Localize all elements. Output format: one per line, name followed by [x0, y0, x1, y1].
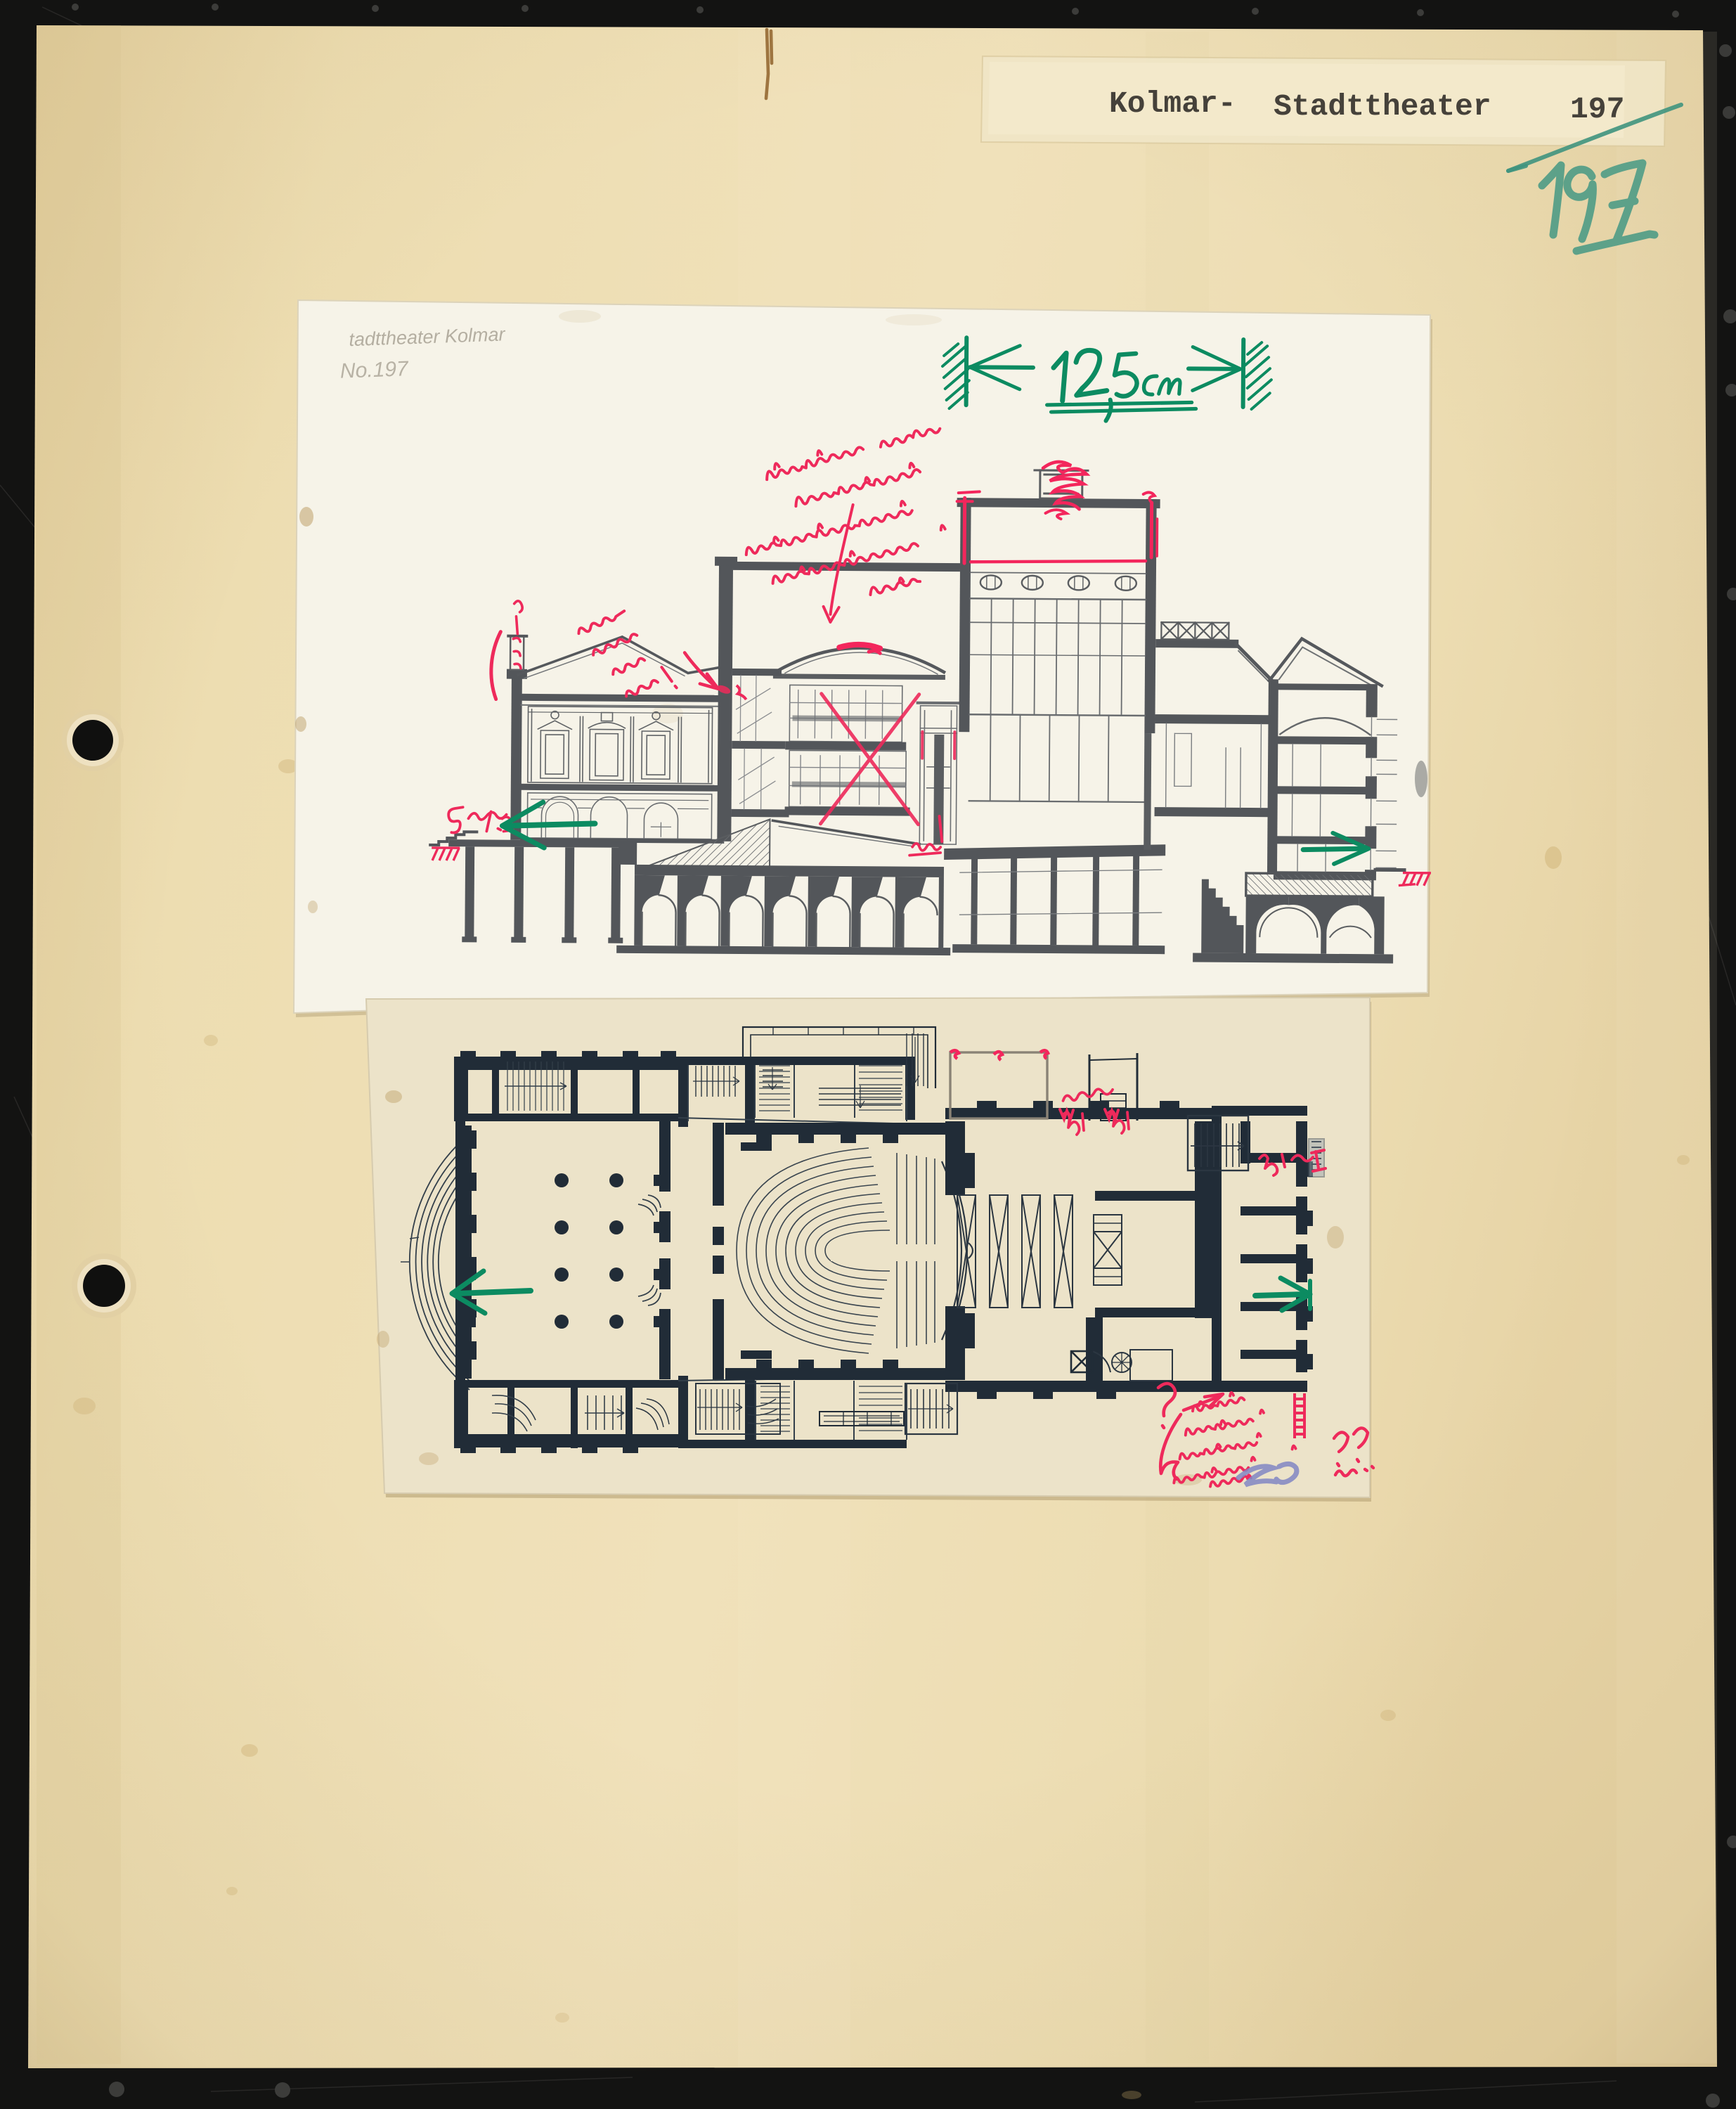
svg-text:Stadttheater: Stadttheater [1274, 89, 1491, 124]
svg-text:No.197: No.197 [339, 357, 409, 382]
svg-text:Kolmar-: Kolmar- [1109, 86, 1236, 121]
svg-text:197: 197 [1570, 92, 1624, 127]
